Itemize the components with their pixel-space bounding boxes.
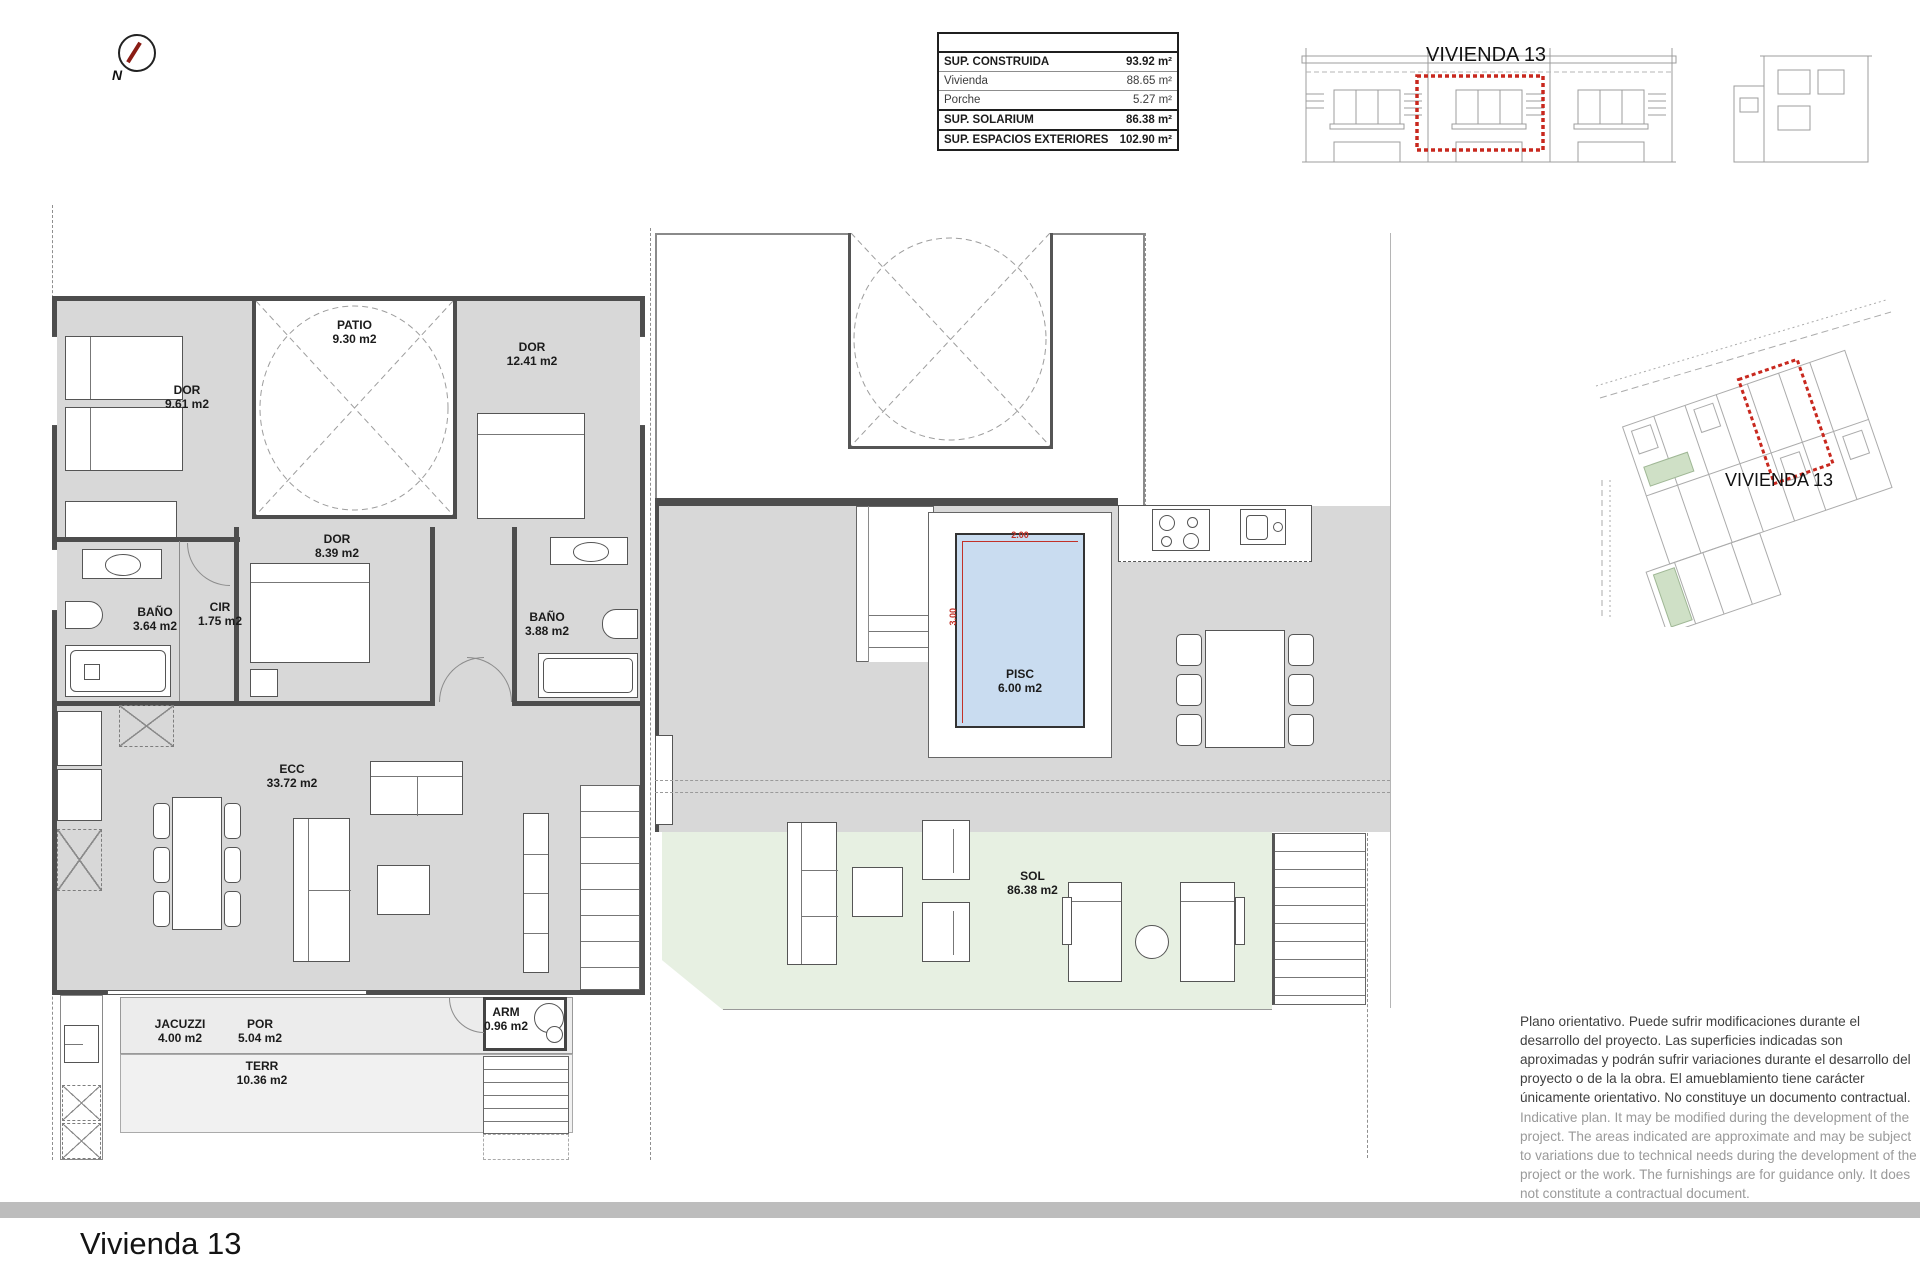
- chair-back: [953, 829, 954, 873]
- pillow: [478, 414, 584, 435]
- table-header-row: [939, 34, 1177, 51]
- bathroom-sink: [550, 537, 628, 565]
- pillow: [66, 408, 91, 470]
- boundary-dashed-line: [650, 228, 651, 1160]
- pool: [955, 533, 1085, 728]
- sliding-door: [107, 990, 367, 995]
- outdoor-armchair: [922, 820, 970, 880]
- room-label-bano2: BAÑO3.88 m2: [497, 611, 597, 639]
- room-area: 33.72 m2: [237, 777, 347, 791]
- sink-tap: [1273, 522, 1283, 532]
- disclaimer-english: Indicative plan. It may be modified duri…: [1520, 1108, 1918, 1203]
- outdoor-armchair: [922, 902, 970, 962]
- room-label-por: POR5.04 m2: [225, 1018, 295, 1046]
- outdoor-sink: [1240, 509, 1286, 545]
- room-label-arm: ARM0.96 m2: [478, 1006, 534, 1034]
- room-label-cir: CIR1.75 m2: [185, 601, 255, 629]
- outdoor-chair: [1288, 714, 1314, 746]
- shelf-lines: [524, 893, 548, 894]
- wall: [57, 537, 240, 542]
- planter: [62, 1085, 101, 1121]
- dining-table: [172, 797, 222, 930]
- room-label-dor2: DOR12.41 m2: [472, 341, 592, 369]
- room-label-pisc: PISC6.00 m2: [970, 668, 1070, 696]
- bathroom-sink: [82, 549, 162, 579]
- sofa: [370, 761, 463, 815]
- footer-bar: [0, 1202, 1920, 1218]
- north-compass: N: [112, 30, 162, 85]
- window: [52, 336, 57, 426]
- room-label-terr: TERR10.36 m2: [222, 1060, 302, 1088]
- sheet-title: Vivienda 13: [80, 1226, 241, 1262]
- solarium-staircase: [1272, 833, 1366, 1005]
- sofa-back: [788, 823, 802, 964]
- toilet: [602, 609, 638, 639]
- door-arc: [467, 657, 512, 702]
- toilet: [65, 601, 103, 629]
- site-plan-drawing: [1586, 282, 1916, 627]
- room-name: DOR: [282, 533, 392, 547]
- room-name: PISC: [970, 668, 1070, 682]
- sofa-back: [371, 762, 462, 777]
- burner-icon: [1183, 533, 1199, 549]
- wall: [57, 701, 435, 706]
- stair-landing-dashed: [483, 1134, 569, 1160]
- site-plan-unit-label: VIVIENDA 13: [1725, 470, 1895, 491]
- bedside-table: [250, 669, 278, 697]
- single-bed: [65, 407, 183, 471]
- compass-north-label: N: [112, 67, 122, 83]
- table-row: Vivienda88.65 m²: [939, 71, 1177, 90]
- room-area: 10.36 m2: [222, 1074, 302, 1088]
- sofa: [293, 818, 350, 962]
- pillow: [251, 564, 369, 583]
- room-label-sol: SOL86.38 m2: [985, 870, 1080, 898]
- pool-width-dim: 2.00: [995, 530, 1045, 540]
- table-row: SUP. CONSTRUIDA93.92 m²: [939, 51, 1177, 71]
- shelf-lines: [524, 854, 548, 855]
- elevation-highlight-box: [1417, 76, 1543, 150]
- room-area: 8.39 m2: [282, 547, 392, 561]
- lounger-headrest: [1069, 901, 1121, 902]
- void-cross-marks: [851, 233, 1050, 446]
- row-label: Porche: [944, 93, 980, 107]
- dining-chair: [224, 803, 241, 839]
- outdoor-coffee-table: [852, 867, 903, 917]
- table-row: Porche5.27 m²: [939, 90, 1177, 109]
- room-name: SOL: [985, 870, 1080, 884]
- deck-dashed-line: [655, 780, 1390, 781]
- exterior-staircase: [483, 1056, 569, 1134]
- lounger-arm: [1062, 897, 1072, 945]
- sofa-seat-line: [308, 890, 351, 891]
- room-area: 86.38 m2: [985, 884, 1080, 898]
- bathtub-inner: [543, 658, 633, 693]
- room-area: 9.61 m2: [132, 398, 242, 412]
- outdoor-chair: [1176, 674, 1202, 706]
- pantry-closet: [119, 705, 174, 747]
- sun-lounger: [1180, 882, 1235, 982]
- interior-staircase: [580, 785, 640, 990]
- wall: [512, 701, 645, 706]
- double-bed: [477, 413, 585, 519]
- row-label: SUP. CONSTRUIDA: [944, 55, 1049, 69]
- room-name: BAÑO: [497, 611, 597, 625]
- shelf-lines: [524, 933, 548, 934]
- bathtub: [65, 645, 171, 697]
- double-bed: [250, 563, 370, 663]
- sink-basin: [105, 554, 141, 576]
- burner-icon: [1161, 536, 1172, 547]
- sink-basin: [573, 542, 609, 562]
- chair-back: [953, 911, 954, 955]
- sun-lounger: [1068, 882, 1122, 982]
- compass-circle-icon: [118, 34, 156, 72]
- room-area: 12.41 m2: [472, 355, 592, 369]
- table-row: SUP. ESPACIOS EXTERIORES102.90 m²: [939, 129, 1177, 149]
- row-value: 86.38 m²: [1126, 113, 1172, 127]
- boundary-dashed-line: [1367, 833, 1368, 1158]
- bathtub-faucet: [84, 664, 100, 680]
- sofa-cushion-line: [801, 870, 838, 871]
- outdoor-dining-table: [1205, 630, 1285, 748]
- room-name: ECC: [237, 763, 347, 777]
- room-area: 6.00 m2: [970, 682, 1070, 696]
- lounger-headrest: [1181, 901, 1234, 902]
- outdoor-chair: [1288, 634, 1314, 666]
- row-value: 93.92 m²: [1126, 55, 1172, 69]
- disclaimer-spanish: Plano orientativo. Puede sufrir modifica…: [1520, 1012, 1918, 1107]
- kitchen-cabinet: [57, 711, 102, 766]
- room-name: PATIO: [302, 319, 407, 333]
- window: [52, 549, 57, 611]
- room-area: 1.75 m2: [185, 615, 255, 629]
- pool-dim-line-h: [962, 541, 1078, 542]
- room-name: DOR: [472, 341, 592, 355]
- sofa-seat-line: [417, 776, 418, 816]
- outdoor-sofa: [787, 822, 837, 965]
- wardrobe: [65, 501, 177, 539]
- room-area: 4.00 m2: [135, 1032, 225, 1046]
- site-highlight-box: [1738, 359, 1832, 483]
- room-label-patio: PATIO9.30 m2: [302, 319, 407, 347]
- outdoor-chair: [1288, 674, 1314, 706]
- pantry-closet: [57, 829, 102, 891]
- bathtub: [538, 653, 638, 698]
- plan-edge-line: [723, 1009, 1272, 1010]
- room-label-jacuzzi: JACUZZI4.00 m2: [135, 1018, 225, 1046]
- lounger-arm: [1235, 897, 1245, 945]
- burner-icon: [1187, 517, 1198, 528]
- outdoor-chair: [1176, 634, 1202, 666]
- wall: [430, 527, 435, 703]
- room-name: DOR: [132, 384, 242, 398]
- dining-chair: [153, 803, 170, 839]
- dining-chair: [153, 847, 170, 883]
- round-side-table: [1135, 925, 1169, 959]
- surface-area-table: SUP. CONSTRUIDA93.92 m² Vivienda88.65 m²…: [937, 32, 1179, 151]
- table-row: SUP. SOLARIUM86.38 m²: [939, 109, 1177, 129]
- room-area: 9.30 m2: [302, 333, 407, 347]
- room-label-dor3: DOR8.39 m2: [282, 533, 392, 561]
- building-elevation-drawing: [1298, 26, 1878, 166]
- cooktop: [1152, 509, 1210, 551]
- sofa-back: [294, 819, 309, 961]
- room-name: ARM: [478, 1006, 534, 1020]
- tv-unit: [523, 813, 549, 973]
- stairwell-steps: [869, 600, 934, 662]
- coffee-table: [377, 865, 430, 915]
- dining-chair: [224, 847, 241, 883]
- dining-chair: [153, 891, 170, 927]
- row-label: Vivienda: [944, 74, 988, 88]
- elevation-unit-label: VIVIENDA 13: [1426, 44, 1586, 67]
- row-value: 5.27 m²: [1133, 93, 1172, 107]
- wall: [655, 498, 1118, 506]
- pool-dim-line-v: [962, 541, 963, 723]
- tub-line: [65, 1044, 83, 1045]
- dining-chair: [224, 891, 241, 927]
- room-area: 0.96 m2: [478, 1020, 534, 1034]
- jacuzzi-tub: [64, 1025, 99, 1063]
- room-name: POR: [225, 1018, 295, 1032]
- deck-dashed-line: [655, 792, 1390, 793]
- room-name: TERR: [222, 1060, 302, 1074]
- pool-height-dim: 3.00: [948, 608, 960, 626]
- outdoor-chair: [1176, 714, 1202, 746]
- burner-icon: [1159, 515, 1175, 531]
- row-label: SUP. ESPACIOS EXTERIORES: [944, 133, 1108, 147]
- plan-edge-line: [1390, 233, 1391, 1008]
- room-name: JACUZZI: [135, 1018, 225, 1032]
- room-label-dor1: DOR9.61 m2: [132, 384, 242, 412]
- pillow: [66, 337, 91, 399]
- plan-sheet: N SUP. CONSTRUIDA93.92 m² Vivienda88.65 …: [0, 0, 1920, 1280]
- room-area: 5.04 m2: [225, 1032, 295, 1046]
- sink-bowl: [1246, 515, 1268, 540]
- room-name: CIR: [185, 601, 255, 615]
- row-value: 88.65 m²: [1127, 74, 1172, 88]
- window: [640, 336, 645, 426]
- row-value: 102.90 m²: [1120, 133, 1172, 147]
- boiler-icon-small: [546, 1026, 563, 1043]
- room-label-ecc: ECC33.72 m2: [237, 763, 347, 791]
- kitchen-cabinet: [57, 769, 102, 821]
- roof-void: [848, 233, 1053, 449]
- room-area: 3.88 m2: [497, 625, 597, 639]
- ground-floor-plan: PATIO9.30 m2 DOR9.61 m2 DOR12.41 m2 BAÑO…: [52, 296, 645, 995]
- planter: [62, 1123, 101, 1159]
- row-label: SUP. SOLARIUM: [944, 113, 1034, 127]
- sofa-cushion-line: [801, 916, 838, 917]
- door-arc: [187, 543, 230, 586]
